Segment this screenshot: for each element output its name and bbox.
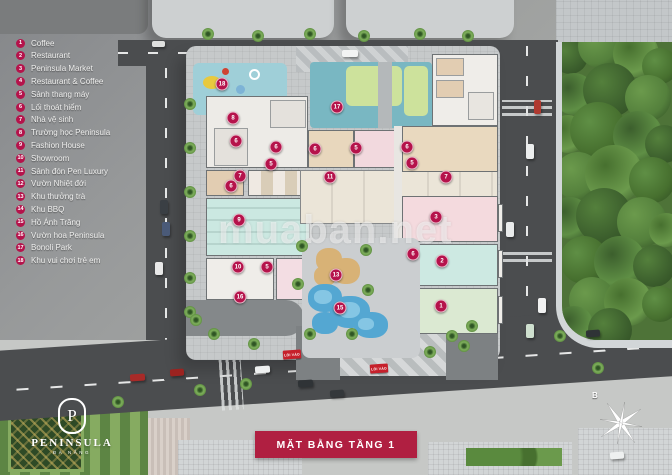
map-marker-15: 15 xyxy=(334,302,347,315)
legend-item-number: 16 xyxy=(16,231,25,240)
entrance-marker: LỐI VÀO xyxy=(370,363,389,373)
palm-tree xyxy=(208,328,220,340)
legend-item: 8Trường học Peninsula xyxy=(16,127,110,139)
floor-banner: MẶT BẰNG TẦNG 1 xyxy=(255,431,417,458)
map-marker-5: 5 xyxy=(261,261,274,274)
legend-item: 15Hồ Ánh Trăng xyxy=(16,216,80,228)
legend-item-number: 5 xyxy=(16,90,25,99)
legend-item-label: Hồ Ánh Trăng xyxy=(31,218,80,227)
legend-item: 1Coffee xyxy=(16,37,54,49)
playground-dot xyxy=(222,68,229,75)
entrance-label: LỐI VÀO xyxy=(371,366,387,371)
legend-item-label: Sảnh thang máy xyxy=(31,90,89,99)
legend-item-number: 13 xyxy=(16,192,25,201)
tower-room-cell xyxy=(436,58,464,76)
palm-tree xyxy=(240,378,252,390)
car xyxy=(538,298,546,313)
map-marker-6: 6 xyxy=(309,143,322,156)
school-room xyxy=(214,128,248,166)
legend-item: 10Showroom xyxy=(16,152,69,164)
car xyxy=(298,379,313,387)
palm-tree xyxy=(358,30,370,42)
legend-item-number: 14 xyxy=(16,205,25,214)
palm-tree xyxy=(466,320,478,332)
courtyard-lawn xyxy=(404,66,428,116)
tower-room-cell xyxy=(436,80,464,98)
car xyxy=(160,200,168,214)
legend-item-number: 4 xyxy=(16,77,25,86)
palm-tree xyxy=(346,328,358,340)
map-marker-10: 10 xyxy=(232,261,245,274)
legend-item-number: 17 xyxy=(16,243,25,252)
legend-item-label: Trường học Peninsula xyxy=(31,128,110,137)
legend-item: 13Khu thưởng trà xyxy=(16,191,85,203)
car xyxy=(330,390,344,398)
legend-item: 3Peninsula Market xyxy=(16,63,93,75)
map-marker-5: 5 xyxy=(406,157,419,170)
car xyxy=(342,50,358,57)
city-block xyxy=(346,0,514,38)
crosswalk xyxy=(502,248,552,262)
map-marker-6: 6 xyxy=(270,141,283,154)
legend-item-label: Showroom xyxy=(31,154,69,163)
sidewalk xyxy=(556,0,672,44)
legend-item: 7Nhà vệ sinh xyxy=(16,114,73,126)
legend-item-number: 12 xyxy=(16,179,25,188)
pavement-corner xyxy=(0,0,148,34)
legend-item-label: Vườn Nhiệt đới xyxy=(31,179,86,188)
palm-tree xyxy=(190,314,202,326)
car xyxy=(526,324,534,338)
palm-tree xyxy=(252,30,264,42)
park-tree xyxy=(642,286,672,322)
legend-item-number: 9 xyxy=(16,141,25,150)
tower-room-cell xyxy=(468,92,494,120)
map-marker-16: 16 xyxy=(234,291,247,304)
pool-shallow xyxy=(314,290,332,304)
palm-tree xyxy=(184,186,196,198)
car xyxy=(130,373,145,381)
driveway xyxy=(186,300,304,336)
map-marker-7: 7 xyxy=(440,171,453,184)
car xyxy=(255,365,270,373)
entrance-label: LỐI VÀO xyxy=(284,352,300,357)
pool-shallow xyxy=(358,318,374,330)
legend-item: 18Khu vui chơi trẻ em xyxy=(16,255,100,267)
map-marker-17: 17 xyxy=(331,101,344,114)
car xyxy=(610,452,624,460)
watermark: muaban.net xyxy=(218,208,452,253)
legend-item: 6Lối thoát hiểm xyxy=(16,101,81,113)
palm-tree xyxy=(304,328,316,340)
car xyxy=(152,41,165,47)
car xyxy=(534,100,541,114)
map-marker-13: 13 xyxy=(330,269,343,282)
palm-tree xyxy=(554,330,566,342)
map-marker-6: 6 xyxy=(407,248,420,261)
balcony xyxy=(498,204,503,232)
compass-icon xyxy=(596,398,646,448)
legend-item-number: 15 xyxy=(16,218,25,227)
moon-lake-pool xyxy=(312,312,338,334)
legend-item-number: 10 xyxy=(16,154,25,163)
balcony xyxy=(498,296,503,324)
legend-item-number: 1 xyxy=(16,39,25,48)
palm-tree xyxy=(202,28,214,40)
palm-tree xyxy=(592,362,604,374)
legend-item-number: 11 xyxy=(16,167,25,176)
legend-item-label: Peninsula Market xyxy=(31,64,93,73)
car xyxy=(170,369,184,377)
palm-tree xyxy=(184,272,196,284)
palm-tree xyxy=(184,230,196,242)
legend-item: 5Sảnh thang máy xyxy=(16,88,89,100)
legend-item: 11Sảnh đón Pen Luxury xyxy=(16,165,108,177)
palm-tree xyxy=(304,28,316,40)
legend-item-label: Coffee xyxy=(31,39,54,48)
park xyxy=(556,42,672,348)
legend-item: 4Restaurant & Coffee xyxy=(16,75,103,87)
map-marker-6: 6 xyxy=(401,141,414,154)
car xyxy=(526,144,534,159)
logo-monogram-icon: P xyxy=(58,398,86,434)
palm-tree xyxy=(248,338,260,350)
legend-item: 16Vườn hoa Peninsula xyxy=(16,229,104,241)
legend-item: 9Fashion House xyxy=(16,139,85,151)
legend-item-label: Vườn hoa Peninsula xyxy=(31,231,104,240)
map-marker-8: 8 xyxy=(227,112,240,125)
palm-tree xyxy=(194,384,206,396)
palm-tree xyxy=(112,396,124,408)
palm-tree xyxy=(362,284,374,296)
map-marker-3: 3 xyxy=(430,211,443,224)
park-tree xyxy=(629,157,672,203)
playground-dot xyxy=(236,85,245,94)
palm-tree xyxy=(458,340,470,352)
courtyard-path xyxy=(378,62,392,128)
map-marker-2: 2 xyxy=(436,255,449,268)
courtyard-lawn xyxy=(346,66,402,106)
car xyxy=(586,330,600,338)
legend-item: 2Restaurant xyxy=(16,50,70,62)
project-logo: P PENINSULA ĐÀ NẴNG xyxy=(22,398,122,455)
map-marker-6: 6 xyxy=(225,180,238,193)
legend-item-number: 8 xyxy=(16,128,25,137)
floorplan-poster: LỐI VÀO LỐI VÀO muaban.net 1886657691051… xyxy=(0,0,672,475)
legend-item-label: Khu thưởng trà xyxy=(31,192,85,201)
palm-tree xyxy=(184,98,196,110)
park-tree xyxy=(588,308,632,348)
logo-subtitle: ĐÀ NẴNG xyxy=(22,450,122,455)
legend-item-number: 18 xyxy=(16,256,25,265)
palm-tree xyxy=(292,278,304,290)
palm-tree xyxy=(360,244,372,256)
map-marker-9: 9 xyxy=(233,214,246,227)
palm-tree xyxy=(414,28,426,40)
map-marker-1: 1 xyxy=(435,300,448,313)
legend-item: 12Vườn Nhiệt đới xyxy=(16,178,86,190)
legend-item-number: 6 xyxy=(16,103,25,112)
legend-item-number: 3 xyxy=(16,64,25,73)
right-road xyxy=(497,40,557,356)
legend-item: 14Khu BBQ xyxy=(16,203,64,215)
legend-item-label: Restaurant xyxy=(31,51,70,60)
legend-item-label: Khu BBQ xyxy=(31,205,64,214)
palm-tree xyxy=(296,240,308,252)
legend-item-number: 2 xyxy=(16,51,25,60)
school-room xyxy=(270,100,306,128)
map-marker-18: 18 xyxy=(216,78,229,91)
legend-item-label: Fashion House xyxy=(31,141,85,150)
legend-item-label: Nhà vệ sinh xyxy=(31,115,73,124)
logo-name: PENINSULA xyxy=(22,437,122,449)
legend-item-label: Restaurant & Coffee xyxy=(31,77,103,86)
palm-tree xyxy=(462,30,474,42)
playground-ring xyxy=(249,69,260,80)
car xyxy=(506,222,514,237)
legend-item-label: Sảnh đón Pen Luxury xyxy=(31,167,108,176)
map-marker-5: 5 xyxy=(265,158,278,171)
map-marker-5: 5 xyxy=(350,142,363,155)
palm-tree xyxy=(424,346,436,358)
legend-item: 17Bonoli Park xyxy=(16,242,72,254)
crosswalk xyxy=(502,100,552,116)
floor-banner-title: MẶT BẰNG TẦNG 1 xyxy=(277,439,396,451)
palm-tree xyxy=(184,142,196,154)
rooftop-trees xyxy=(466,448,562,466)
balcony xyxy=(498,250,503,278)
service-rooms xyxy=(248,170,306,196)
legend-item-number: 7 xyxy=(16,115,25,124)
legend-item-label: Lối thoát hiểm xyxy=(31,103,81,112)
car xyxy=(155,262,163,275)
legend-item-label: Bonoli Park xyxy=(31,243,72,252)
car xyxy=(162,222,170,236)
entrance-marker: LỐI VÀO xyxy=(283,349,302,359)
legend-item-label: Khu vui chơi trẻ em xyxy=(31,256,100,265)
map-marker-6: 6 xyxy=(230,135,243,148)
palm-tree xyxy=(446,330,458,342)
map-marker-11: 11 xyxy=(324,171,337,184)
